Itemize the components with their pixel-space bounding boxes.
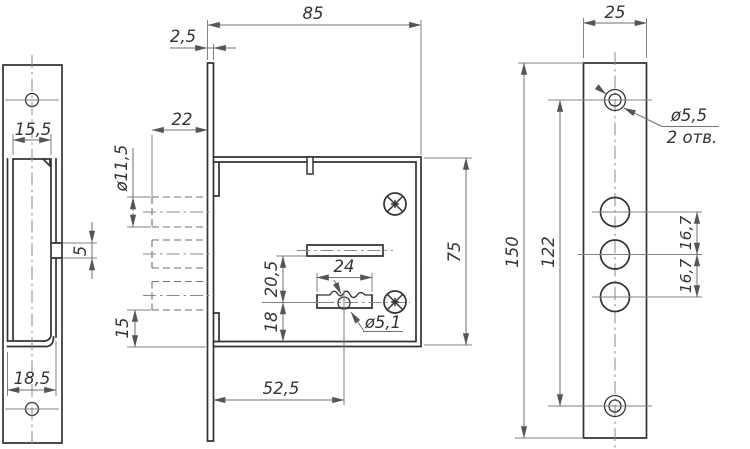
dim-label-slot-width-top: 15,5 bbox=[15, 120, 52, 139]
dim-label-slot-width-bottom: 18,5 bbox=[14, 369, 51, 388]
faceplate-edge-contour bbox=[208, 63, 214, 441]
dim-label-bolt-hole-pitch-lower: 16,7 bbox=[677, 259, 695, 294]
lock-body-view: 85 2,5 22 ø11,5 15 75 52,5 24 20,5 18 ø5… bbox=[112, 4, 472, 441]
dim-label-key-bit-width: 24 bbox=[334, 257, 355, 276]
dim-label-lip-depth: 5 bbox=[71, 246, 90, 257]
keyhole-leader bbox=[351, 312, 364, 331]
dim-label-plate-width: 25 bbox=[605, 3, 626, 22]
dim-label-keyhole-diameter: ø5,1 bbox=[364, 313, 401, 332]
dim-label-overall-depth: 85 bbox=[303, 4, 324, 23]
dim-label-bolt-diameter: ø11,5 bbox=[112, 145, 131, 193]
dim-label-keyhole-to-bottom: 18 bbox=[262, 312, 281, 333]
dim-label-bolt-hole-pitch-upper: 16,7 bbox=[677, 216, 695, 251]
faceplate-extension-lines bbox=[515, 18, 702, 438]
dim-label-latch-to-keyhole: 20,5 bbox=[262, 261, 281, 298]
dim-label-bolt-to-bottom: 15 bbox=[113, 318, 132, 339]
drawing-canvas: 15,5 5 18,5 bbox=[0, 0, 750, 449]
case-top-tab bbox=[307, 157, 313, 174]
strike-plate-view: 15,5 5 18,5 bbox=[3, 55, 97, 448]
dim-label-screw-hole-diameter: ø5,5 bbox=[670, 106, 707, 125]
dim-label-keyhole-offset: 52,5 bbox=[263, 379, 300, 398]
dim-label-screw-hole-spacing: 122 bbox=[539, 236, 558, 268]
screw-hole-leader bbox=[597, 87, 606, 94]
dim-label-screw-hole-quantity: 2 отв. bbox=[667, 128, 717, 147]
dim-label-plate-height: 150 bbox=[503, 236, 522, 268]
dim-label-case-height: 75 bbox=[445, 242, 464, 263]
screw-hole-leader bbox=[624, 108, 662, 127]
screw-top-phillips-icon bbox=[388, 197, 402, 211]
dim-label-faceplate-thickness: 2,5 bbox=[170, 27, 196, 46]
dim-label-bolt-throw: 22 bbox=[172, 110, 193, 129]
lock-technical-drawing: 15,5 5 18,5 bbox=[0, 0, 750, 449]
faceplate-front-view: 25 150 122 16,7 16,7 ø5,5 2 отв. bbox=[503, 3, 719, 449]
